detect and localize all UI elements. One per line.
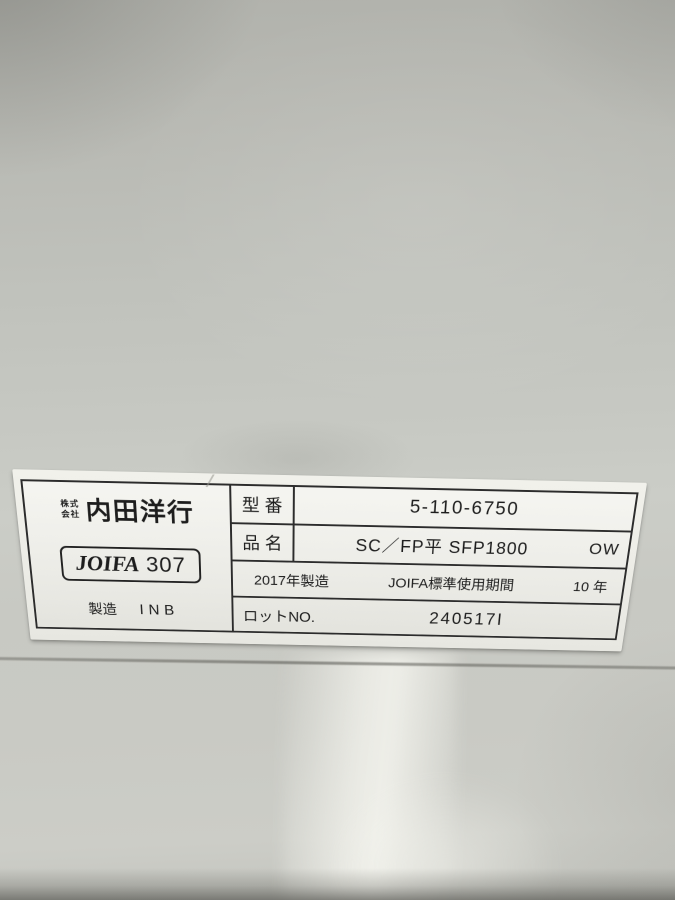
lot-number-value: 240517I bbox=[315, 607, 619, 631]
finish-code: OW bbox=[588, 540, 630, 559]
joifa-word: JOIFA bbox=[75, 551, 140, 576]
spec-table: 型 番 5-110-6750 品 名 SC／FP平 SFP1800 OW 201… bbox=[231, 486, 636, 639]
product-name-header: 品 名 bbox=[232, 524, 295, 561]
panel-seam-line bbox=[0, 657, 675, 669]
shadow-top-right bbox=[0, 0, 675, 900]
model-number-value: 5-110-6750 bbox=[295, 495, 636, 523]
product-name-value: SC／FP平 SFP1800 bbox=[294, 531, 590, 561]
light-glow-upper bbox=[0, 0, 675, 900]
product-name-cell: SC／FP平 SFP1800 OW bbox=[294, 531, 629, 562]
shadow-bottom-right bbox=[0, 0, 675, 900]
lot-number-label: ロットNO. bbox=[233, 604, 315, 627]
lot-number-row: ロットNO. 240517I bbox=[233, 596, 620, 639]
joifa-number: 307 bbox=[145, 552, 186, 578]
light-reflection-bottom bbox=[330, 775, 560, 900]
manufacture-year-cell: 2017年製造 JOIFA標準使用期間 10 年 bbox=[233, 569, 624, 596]
corporate-prefix-line2: 会社 bbox=[61, 509, 81, 519]
photo-of-gray-panel: 株式 会社 内田洋行 JOIFA 307 製造 INB bbox=[0, 0, 675, 900]
label-paper: 株式 会社 内田洋行 JOIFA 307 製造 INB bbox=[12, 469, 647, 651]
manufacture-year: 2017年製造 bbox=[254, 570, 329, 590]
surface-smudge bbox=[0, 0, 675, 900]
model-number-header: 型 番 bbox=[231, 486, 295, 524]
corporate-prefix: 株式 会社 bbox=[60, 499, 80, 519]
manufacture-code-line: 製造 INB bbox=[88, 599, 180, 619]
corporate-prefix-line1: 株式 bbox=[60, 499, 80, 509]
spec-label: 株式 会社 内田洋行 JOIFA 307 製造 INB bbox=[12, 469, 647, 651]
joifa-badge: JOIFA 307 bbox=[60, 545, 201, 583]
usage-period-value: 10 年 bbox=[572, 576, 609, 596]
manufacture-code: INB bbox=[139, 603, 179, 620]
manufacture-label: 製造 bbox=[88, 599, 118, 618]
shadow-top-left bbox=[0, 0, 675, 900]
usage-period-label: JOIFA標準使用期間 bbox=[388, 572, 515, 593]
lot-number-cell: ロットNO. 240517I bbox=[233, 604, 619, 633]
maker-logo: 株式 会社 内田洋行 bbox=[59, 491, 195, 529]
maker-section: 株式 会社 内田洋行 JOIFA 307 製造 INB bbox=[22, 481, 233, 631]
panel-bottom-edge-shadow bbox=[0, 868, 675, 900]
light-reflection-streak bbox=[282, 652, 457, 900]
label-table: 株式 会社 内田洋行 JOIFA 307 製造 INB bbox=[20, 479, 638, 640]
brand-name: 内田洋行 bbox=[84, 491, 195, 529]
